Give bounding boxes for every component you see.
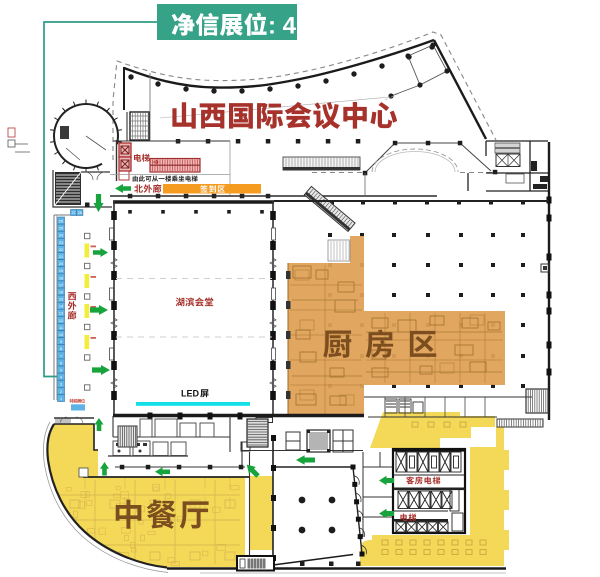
svg-text:2: 2 (60, 390, 62, 394)
svg-text:8: 8 (60, 347, 62, 351)
svg-text:11: 11 (59, 326, 63, 330)
svg-text:: 4: : 4 (268, 13, 297, 40)
svg-text:1: 1 (60, 397, 62, 401)
svg-text:4: 4 (60, 376, 62, 380)
svg-text:27: 27 (72, 211, 76, 215)
svg-text:5: 5 (60, 369, 62, 373)
svg-text:7: 7 (60, 354, 62, 358)
svg-text:12: 12 (59, 319, 63, 323)
svg-text:24: 24 (59, 234, 63, 238)
svg-text:17: 17 (59, 283, 63, 287)
svg-text:9: 9 (60, 340, 62, 344)
svg-text:3: 3 (60, 383, 62, 387)
svg-text:21: 21 (59, 255, 63, 259)
svg-text:19: 19 (59, 269, 63, 273)
svg-text:20: 20 (59, 262, 63, 266)
svg-text:23: 23 (59, 241, 63, 245)
svg-text:28: 28 (78, 211, 82, 215)
svg-text:LED: LED (181, 389, 200, 399)
svg-text:16: 16 (59, 291, 63, 295)
svg-text:10: 10 (59, 333, 63, 337)
svg-text:22: 22 (59, 248, 63, 252)
svg-text:13: 13 (59, 312, 63, 316)
svg-text:6: 6 (60, 361, 62, 365)
svg-text:14: 14 (59, 305, 63, 309)
svg-text:18: 18 (59, 276, 63, 280)
svg-text:25: 25 (59, 227, 63, 231)
svg-text:15: 15 (59, 298, 63, 302)
svg-text:26: 26 (59, 220, 63, 224)
